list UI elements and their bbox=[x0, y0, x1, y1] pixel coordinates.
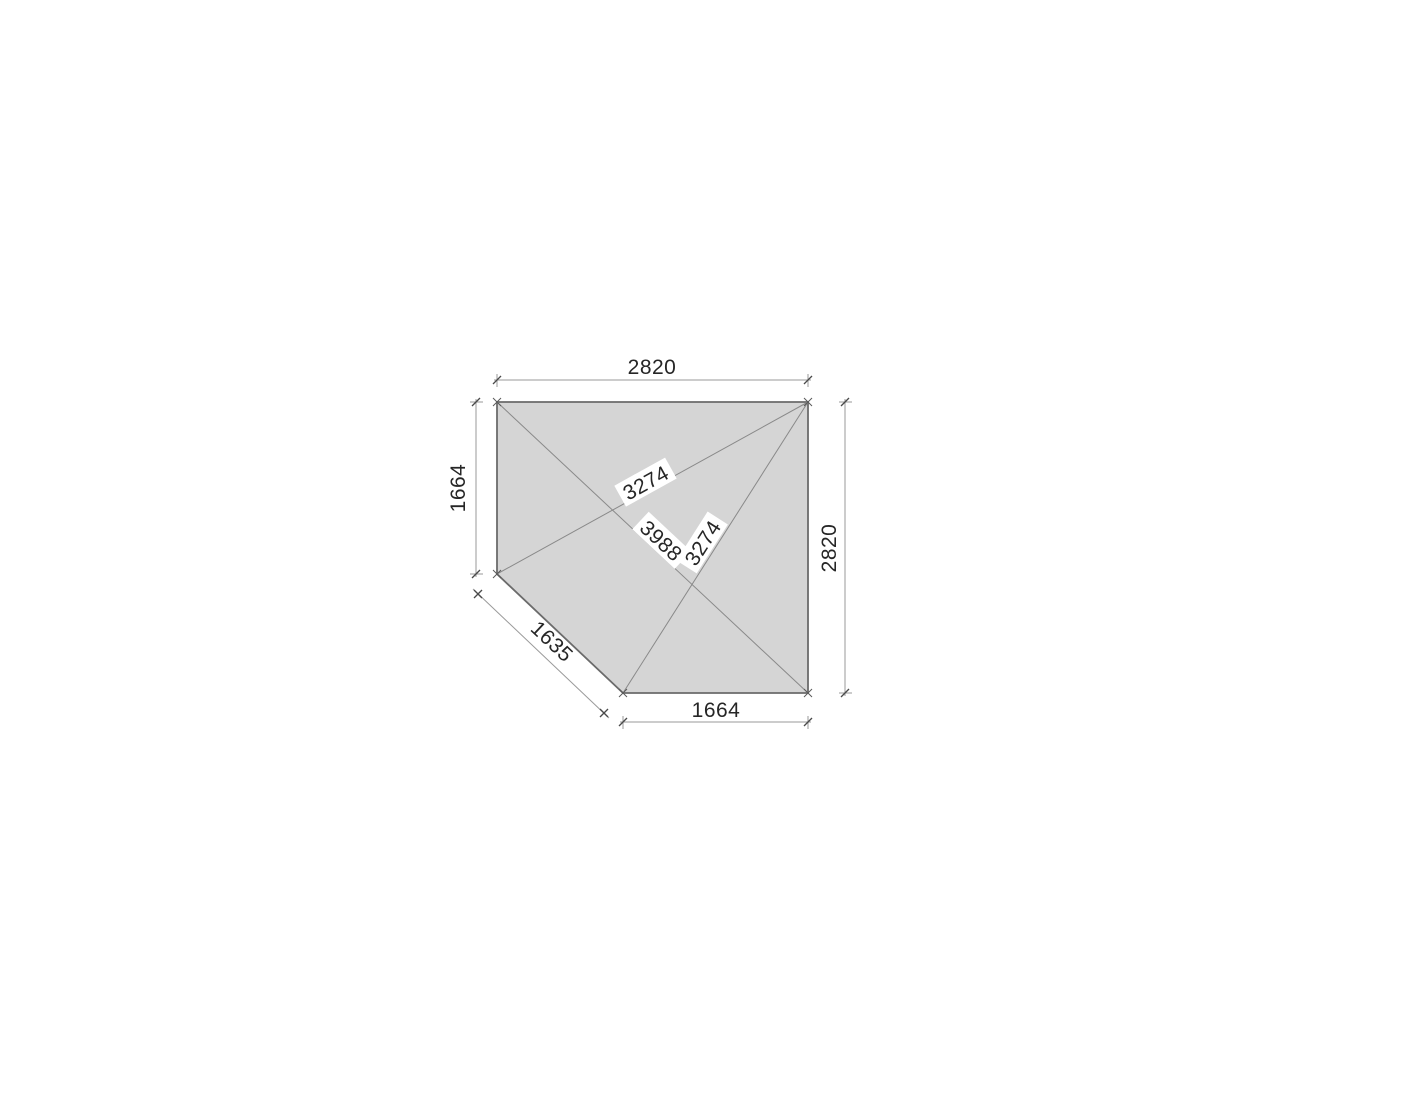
dimension-right-label: 2820 bbox=[818, 524, 841, 573]
dimension-left: 1664 bbox=[447, 398, 483, 578]
dimension-top: 2820 bbox=[493, 356, 812, 387]
dimension-right: 2820 bbox=[818, 398, 852, 697]
dimension-top-label: 2820 bbox=[628, 356, 677, 379]
diagram-canvas: 2820 1664 2820 bbox=[0, 0, 1422, 1100]
dimension-bottom-label: 1664 bbox=[692, 699, 741, 722]
dimension-left-label: 1664 bbox=[447, 464, 470, 513]
dimension-bottom: 1664 bbox=[619, 699, 812, 729]
plan-drawing: 2820 1664 2820 bbox=[0, 0, 1422, 1100]
